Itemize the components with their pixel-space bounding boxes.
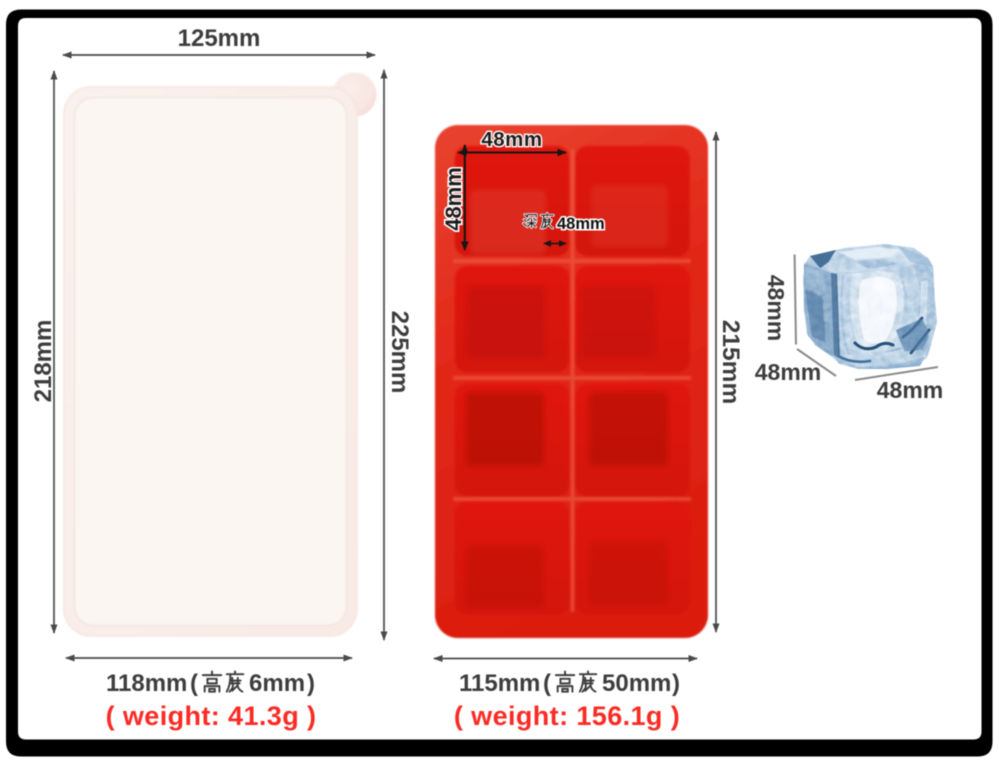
svg-text:215mm: 215mm [717,320,744,404]
svg-text:48mm: 48mm [481,128,542,151]
svg-text:118mm: 118mm [106,670,187,697]
svg-text:115mm: 115mm [459,670,540,697]
svg-text:6mm: 6mm [249,670,305,697]
svg-text:125mm: 125mm [178,25,261,52]
svg-text:48mm: 48mm [877,377,943,403]
svg-text:48mm: 48mm [441,167,466,231]
svg-text:): ) [307,670,315,697]
svg-text:48mm: 48mm [755,359,821,385]
svg-text:218mm: 218mm [30,320,57,403]
svg-text:48mm: 48mm [557,215,605,233]
svg-text:48mm: 48mm [763,275,789,341]
svg-text:( weight: 156.1g ): ( weight: 156.1g ) [454,701,680,731]
svg-text:(: ( [543,670,551,697]
svg-text:50mm: 50mm [602,670,671,697]
svg-text:( weight: 41.3g ): ( weight: 41.3g ) [106,701,317,731]
svg-text:225mm: 225mm [386,311,413,394]
svg-text:(: ( [190,670,198,697]
svg-text:): ) [672,670,680,697]
